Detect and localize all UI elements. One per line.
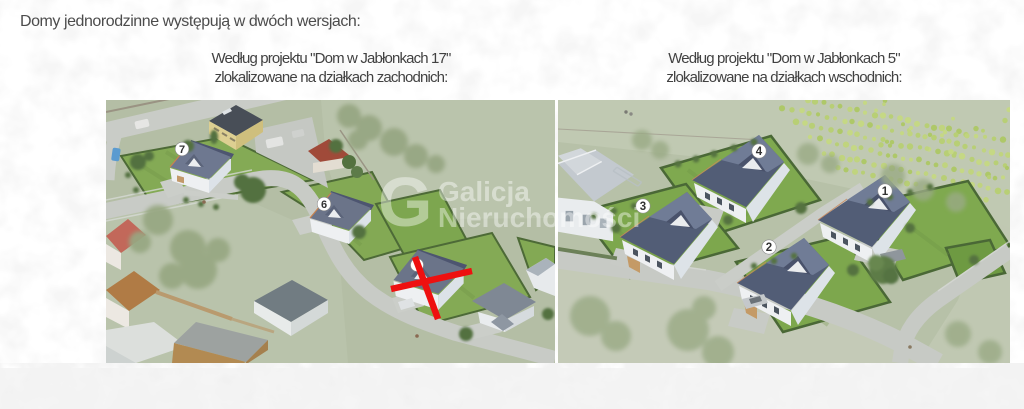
svg-text:2: 2 — [766, 242, 772, 254]
svg-text:7: 7 — [179, 144, 185, 156]
svg-text:Nieruchomości: Nieruchomości — [438, 202, 640, 233]
svg-text:4: 4 — [756, 146, 763, 158]
svg-text:G: G — [378, 173, 432, 235]
svg-text:1: 1 — [882, 186, 889, 198]
svg-text:6: 6 — [321, 199, 327, 211]
